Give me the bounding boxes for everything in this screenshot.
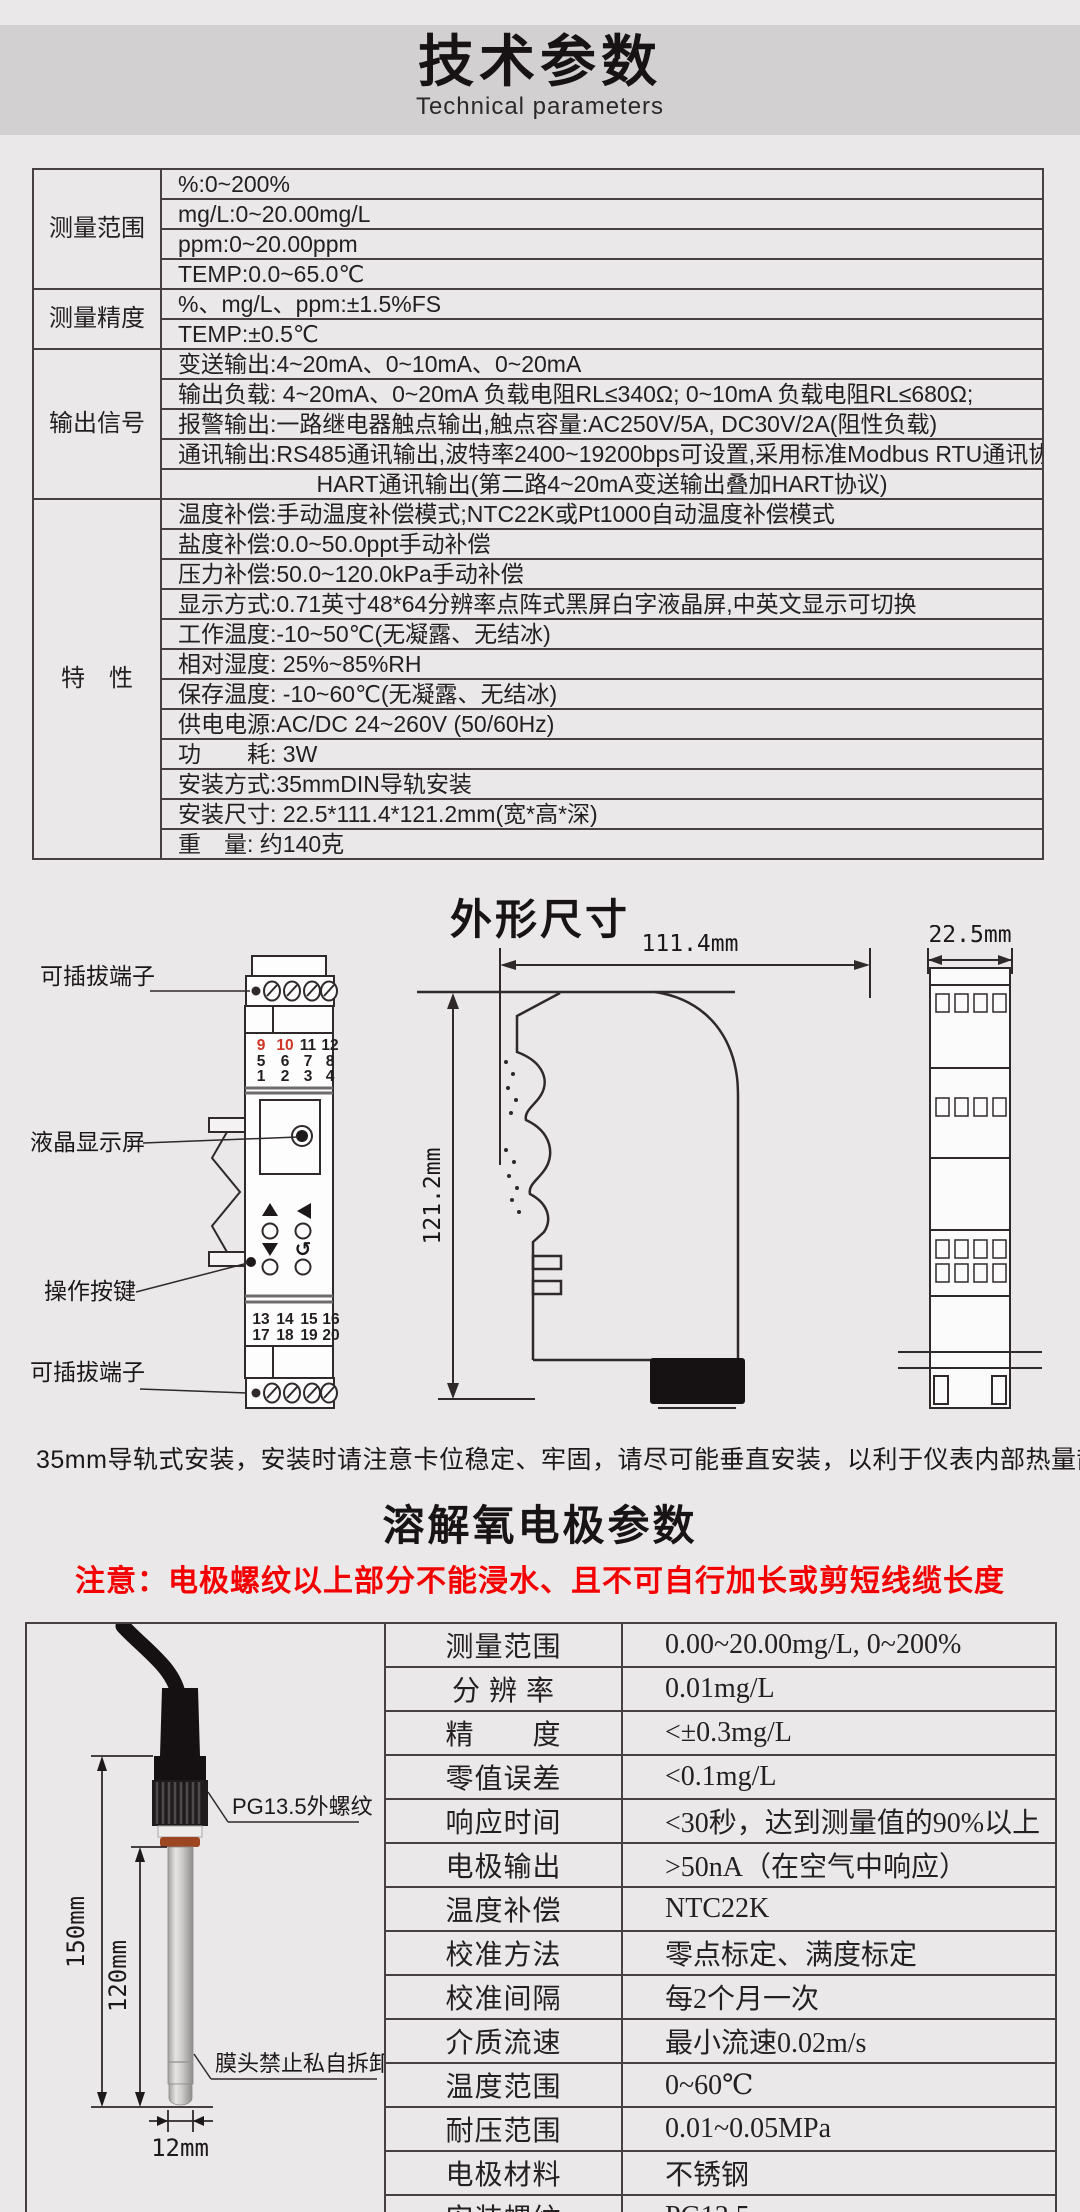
dim-150-label: 150mm (62, 1896, 90, 1968)
outline-diagram: 9 10 11 12 5 6 7 8 1 2 3 4 (0, 925, 1080, 1425)
header-banner: 技术参数 Technical parameters (0, 25, 1080, 135)
callout-plug-top: 可插拔端子 (40, 963, 155, 989)
dim-depth: 22.5mm (928, 925, 1012, 974)
param-value: <30秒，达到测量值的90%以上 (622, 1799, 1056, 1843)
spec-cell: 安装方式:35mmDIN导轨安装 (161, 769, 1043, 799)
spec-cell: mg/L:0~20.00mg/L (161, 199, 1043, 229)
table-row: 盐度补偿:0.0~50.0ppt手动补偿 (33, 529, 1043, 559)
terminal-number: 4 (326, 1068, 335, 1085)
spec-cell: 重 量: 约140克 (161, 829, 1043, 859)
table-row: 功 耗: 3W (33, 739, 1043, 769)
spec-cell: ppm:0~20.00ppm (161, 229, 1043, 259)
spec-cell: 盐度补偿:0.0~50.0ppt手动补偿 (161, 529, 1043, 559)
dim-12-label: 12mm (151, 2134, 209, 2162)
spec-group-label: 测量范围 (33, 169, 161, 289)
spec-cell: 供电电源:AC/DC 24~260V (50/60Hz) (161, 709, 1043, 739)
param-name: 安装螺纹 (385, 2195, 622, 2212)
terminal-number: 9 (257, 1037, 266, 1054)
param-name: 介质流速 (385, 2019, 622, 2063)
svg-text:膜头禁止私自拆卸: 膜头禁止私自拆卸 (215, 2051, 384, 2076)
spec-cell: %:0~200% (161, 169, 1043, 199)
spec-group-label: 测量精度 (33, 289, 161, 349)
table-row: 输出信号 变送输出:4~20mA、0~10mA、0~20mA (33, 349, 1043, 379)
table-row: 测量精度 %、mg/L、ppm:±1.5%FS (33, 289, 1043, 319)
param-name: 耐压范围 (385, 2107, 622, 2151)
table-row: 工作温度:-10~50℃(无凝露、无结冰) (33, 619, 1043, 649)
callout-plug-bottom: 可插拔端子 (30, 1359, 145, 1385)
dim-width-label: 111.4mm (642, 931, 739, 957)
table-row: 相对湿度: 25%~85%RH (33, 649, 1043, 679)
terminal-number: 13 (252, 1311, 270, 1328)
param-name: 分 辨 率 (385, 1667, 622, 1711)
param-value: 零点标定、满度标定 (622, 1931, 1056, 1975)
front-view: 9 10 11 12 5 6 7 8 1 2 3 4 (209, 956, 340, 1408)
page: 技术参数 Technical parameters 测量范围 %:0~200% … (0, 0, 1080, 2212)
param-name: 响应时间 (385, 1799, 622, 1843)
spec-cell: 相对湿度: 25%~85%RH (161, 649, 1043, 679)
dim-height-label: 121.2mm (420, 1148, 446, 1245)
terminal-number: 14 (276, 1311, 294, 1328)
terminal-number: 18 (276, 1327, 294, 1344)
spec-cell: 压力补偿:50.0~120.0kPa手动补偿 (161, 559, 1043, 589)
electrode-connector (160, 1688, 200, 1756)
param-value: <0.1mg/L (622, 1755, 1056, 1799)
spec-cell: 功 耗: 3W (161, 739, 1043, 769)
electrode-photo-cell: 150mm 120mm 12mm PG13.5外螺纹 膜头禁止私自拆卸 (26, 1623, 385, 2212)
electrode-cable (123, 1626, 179, 1698)
terminal-number: 1 (257, 1068, 266, 1085)
param-value: 不锈钢 (622, 2151, 1056, 2195)
dim-width: 111.4mm (500, 931, 870, 1165)
membrane-callout: 膜头禁止私自拆卸 (194, 2051, 384, 2079)
terminal-number: 3 (304, 1068, 313, 1085)
table-row: 重 量: 约140克 (33, 829, 1043, 859)
callout-lcd: 液晶显示屏 (30, 1129, 145, 1155)
dim-depth-label: 22.5mm (928, 925, 1011, 948)
param-value: 0.01mg/L (622, 1667, 1056, 1711)
terminal-number: 11 (300, 1037, 317, 1054)
param-value: 0.00~20.00mg/L, 0~200% (622, 1623, 1056, 1667)
mount-note: 35mm导轨式安装，安装时请注意卡位稳定、牢固，请尽可能垂直安装，以利于仪表内部… (36, 1440, 1066, 1476)
spec-cell: 输出负载: 4~20mA、0~20mA 负载电阻RL≤340Ω; 0~10mA … (161, 379, 1043, 409)
spec-cell: %、mg/L、ppm:±1.5%FS (161, 289, 1043, 319)
param-name: 零值误差 (385, 1755, 622, 1799)
spec-cell: 工作温度:-10~50℃(无凝露、无结冰) (161, 619, 1043, 649)
spec-group-label: 输出信号 (33, 349, 161, 499)
param-name: 校准间隔 (385, 1975, 622, 2019)
spec-cell: 通讯输出:RS485通讯输出,波特率2400~19200bps可设置,采用标准M… (161, 439, 1043, 469)
table-row: 150mm 120mm 12mm PG13.5外螺纹 膜头禁止私自拆卸 (26, 1623, 1056, 1667)
spec-cell: 保存温度: -10~60℃(无凝露、无结冰) (161, 679, 1043, 709)
table-row: mg/L:0~20.00mg/L (33, 199, 1043, 229)
param-name: 温度范围 (385, 2063, 622, 2107)
spec-cell: 显示方式:0.71英寸48*64分辨率点阵式黑屏白字液晶屏,中英文显示可切换 (161, 589, 1043, 619)
callout-keys: 操作按键 (44, 1278, 136, 1304)
table-row: TEMP:0.0~65.0℃ (33, 259, 1043, 289)
param-value: 每2个月一次 (622, 1975, 1056, 2019)
din-connector-block (650, 1358, 745, 1404)
param-value: >50nA（在空气中响应） (622, 1843, 1056, 1887)
spec-cell: 变送输出:4~20mA、0~10mA、0~20mA (161, 349, 1043, 379)
param-name: 校准方法 (385, 1931, 622, 1975)
table-row: 报警输出:一路继电器触点输出,触点容量:AC250V/5A, DC30V/2A(… (33, 409, 1043, 439)
param-name: 测量范围 (385, 1623, 622, 1667)
spec-cell: 安装尺寸: 22.5*111.4*121.2mm(宽*高*深) (161, 799, 1043, 829)
end-view: 22.5mm (898, 925, 1042, 1408)
profile-dots (504, 1060, 521, 1214)
electrode-oring (160, 1837, 200, 1847)
table-row: 通讯输出:RS485通讯输出,波特率2400~19200bps可设置,采用标准M… (33, 439, 1043, 469)
spec-cell: 报警输出:一路继电器触点输出,触点容量:AC250V/5A, DC30V/2A(… (161, 409, 1043, 439)
spec-group-label: 特 性 (33, 499, 161, 859)
table-row: 安装尺寸: 22.5*111.4*121.2mm(宽*高*深) (33, 799, 1043, 829)
table-row: 特 性 温度补偿:手动温度补偿模式;NTC22K或Pt1000自动温度补偿模式 (33, 499, 1043, 529)
param-value: 0~60℃ (622, 2063, 1056, 2107)
section-title-electrode: 溶解氧电极参数 (0, 1492, 1080, 1553)
param-value: <±0.3mg/L (622, 1711, 1056, 1755)
param-value: 0.01~0.05MPa (622, 2107, 1056, 2151)
table-row: 显示方式:0.71英寸48*64分辨率点阵式黑屏白字液晶屏,中英文显示可切换 (33, 589, 1043, 619)
param-name: 电极输出 (385, 1843, 622, 1887)
side-view: 111.4mm 121.2mm (417, 931, 870, 1408)
terminal-number: 12 (321, 1037, 338, 1054)
spec-cell: TEMP:±0.5℃ (161, 319, 1043, 349)
terminal-number: 10 (276, 1037, 293, 1054)
param-name: 精 度 (385, 1711, 622, 1755)
page-title: 技术参数 (0, 25, 1080, 93)
steel-shaft (168, 1847, 193, 2084)
dim-120-label: 120mm (104, 1940, 132, 2012)
return-arrow-icon: ↺ (295, 1239, 312, 1261)
table-row: 保存温度: -10~60℃(无凝露、无结冰) (33, 679, 1043, 709)
page-subtitle: Technical parameters (0, 93, 1080, 121)
spec-cell: HART通讯输出(第二路4~20mA变送输出叠加HART协议) (161, 469, 1043, 499)
electrode-thread (152, 1780, 208, 1826)
terminal-number: 16 (322, 1311, 340, 1328)
lcd-indicator-dot (296, 1130, 308, 1142)
table-row: 供电电源:AC/DC 24~260V (50/60Hz) (33, 709, 1043, 739)
terminal-number: 17 (252, 1327, 269, 1344)
electrode-photo: 150mm 120mm 12mm PG13.5外螺纹 膜头禁止私自拆卸 (27, 1624, 384, 2180)
terminal-number: 15 (300, 1311, 318, 1328)
spec-cell: TEMP:0.0~65.0℃ (161, 259, 1043, 289)
terminal-number: 19 (300, 1327, 318, 1344)
param-value: NTC22K (622, 1887, 1056, 1931)
svg-text:PG13.5外螺纹: PG13.5外螺纹 (232, 1794, 373, 1819)
table-row: 安装方式:35mmDIN导轨安装 (33, 769, 1043, 799)
spec-cell: 温度补偿:手动温度补偿模式;NTC22K或Pt1000自动温度补偿模式 (161, 499, 1043, 529)
table-row: TEMP:±0.5℃ (33, 319, 1043, 349)
table-row: 输出负载: 4~20mA、0~20mA 负载电阻RL≤340Ω; 0~10mA … (33, 379, 1043, 409)
warning-text: 注意：电极螺纹以上部分不能浸水、且不可自行加长或剪短线缆长度 (0, 1556, 1080, 1600)
terminal-number: 20 (322, 1327, 339, 1344)
spec-table: 测量范围 %:0~200% mg/L:0~20.00mg/L ppm:0~20.… (32, 168, 1044, 860)
param-value: PG13.5 (622, 2195, 1056, 2212)
thread-callout: PG13.5外螺纹 (208, 1792, 373, 1822)
electrode-table: 150mm 120mm 12mm PG13.5外螺纹 膜头禁止私自拆卸 (25, 1622, 1057, 2212)
table-row: HART通讯输出(第二路4~20mA变送输出叠加HART协议) (33, 469, 1043, 499)
param-name: 电极材料 (385, 2151, 622, 2195)
table-row: 压力补偿:50.0~120.0kPa手动补偿 (33, 559, 1043, 589)
table-row: ppm:0~20.00ppm (33, 229, 1043, 259)
param-name: 温度补偿 (385, 1887, 622, 1931)
dim-height: 121.2mm (420, 993, 535, 1399)
terminal-number: 2 (281, 1068, 290, 1085)
table-row: 测量范围 %:0~200% (33, 169, 1043, 199)
param-value: 最小流速0.02m/s (622, 2019, 1056, 2063)
